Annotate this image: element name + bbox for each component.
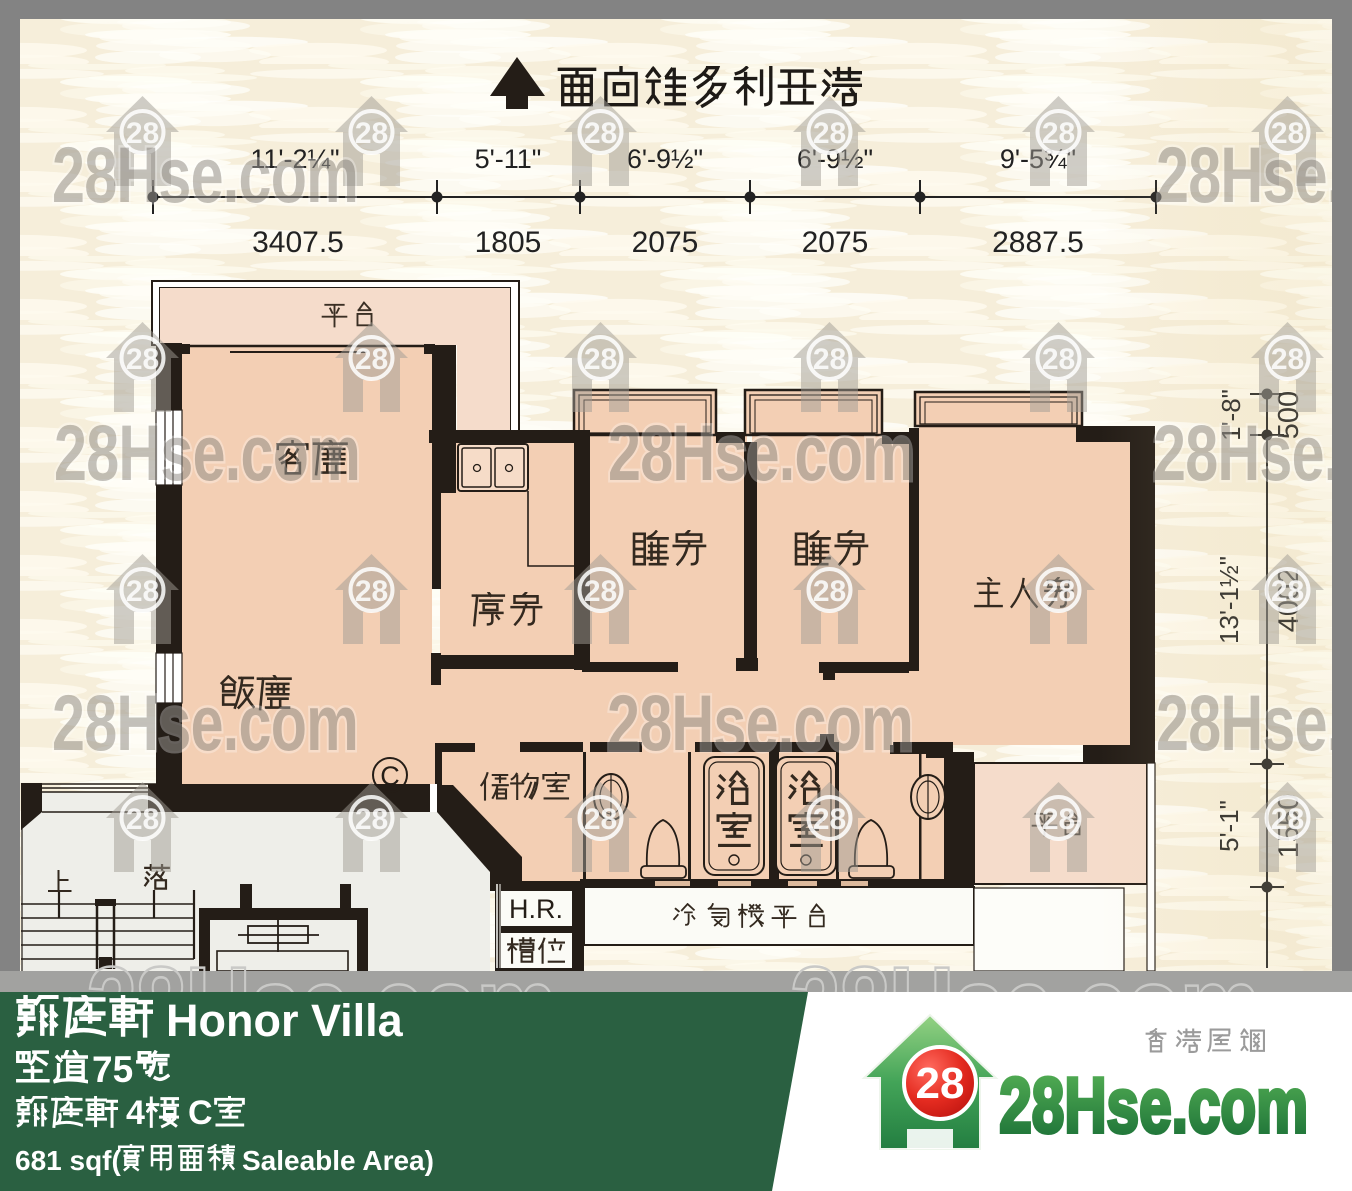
svg-text:Honor Villa: Honor Villa: [166, 995, 404, 1046]
svg-text:28Hse.com: 28Hse.com: [86, 962, 556, 992]
svg-text:28: 28: [916, 1059, 965, 1108]
svg-text:28Hse.com: 28Hse.com: [999, 1062, 1308, 1149]
svg-text:681 sqf(: 681 sqf(: [15, 1145, 121, 1176]
svg-text:Saleable Area): Saleable Area): [242, 1145, 434, 1176]
svg-text:C: C: [188, 1094, 213, 1132]
svg-text:75: 75: [92, 1049, 133, 1090]
svg-text:28Hse.com: 28Hse.com: [790, 962, 1260, 992]
svg-text:4: 4: [126, 1094, 145, 1132]
